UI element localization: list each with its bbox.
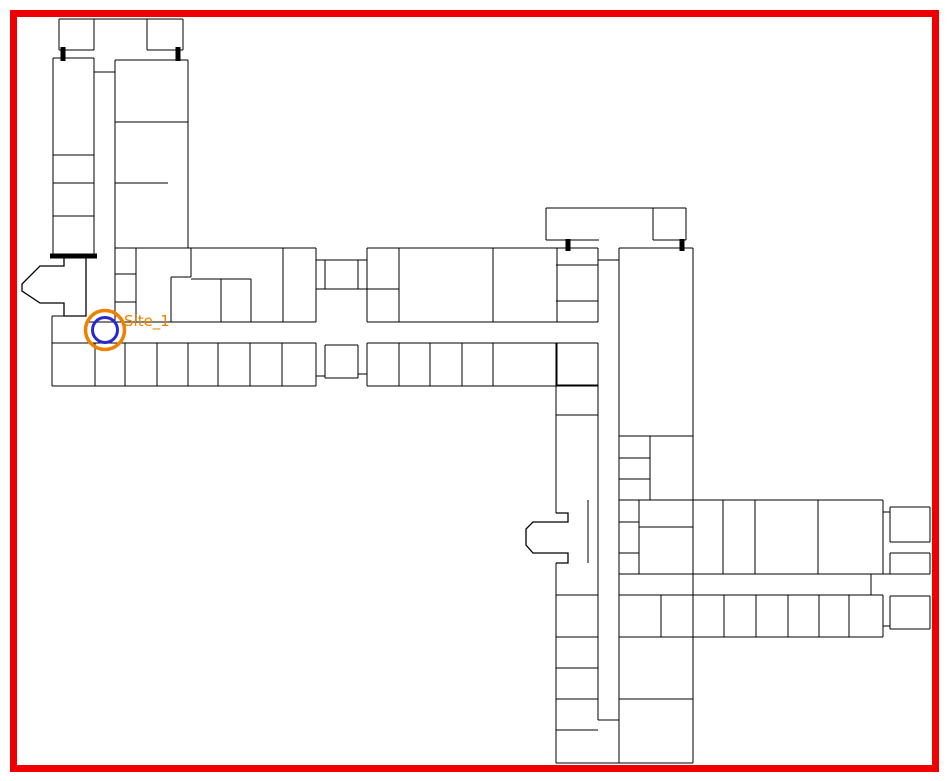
canvas-background (0, 0, 949, 781)
floorplan-canvas: Site_1 (0, 0, 949, 781)
site-marker-label: Site_1 (124, 312, 170, 331)
floorplan-viewport: Site_1 (0, 0, 949, 781)
